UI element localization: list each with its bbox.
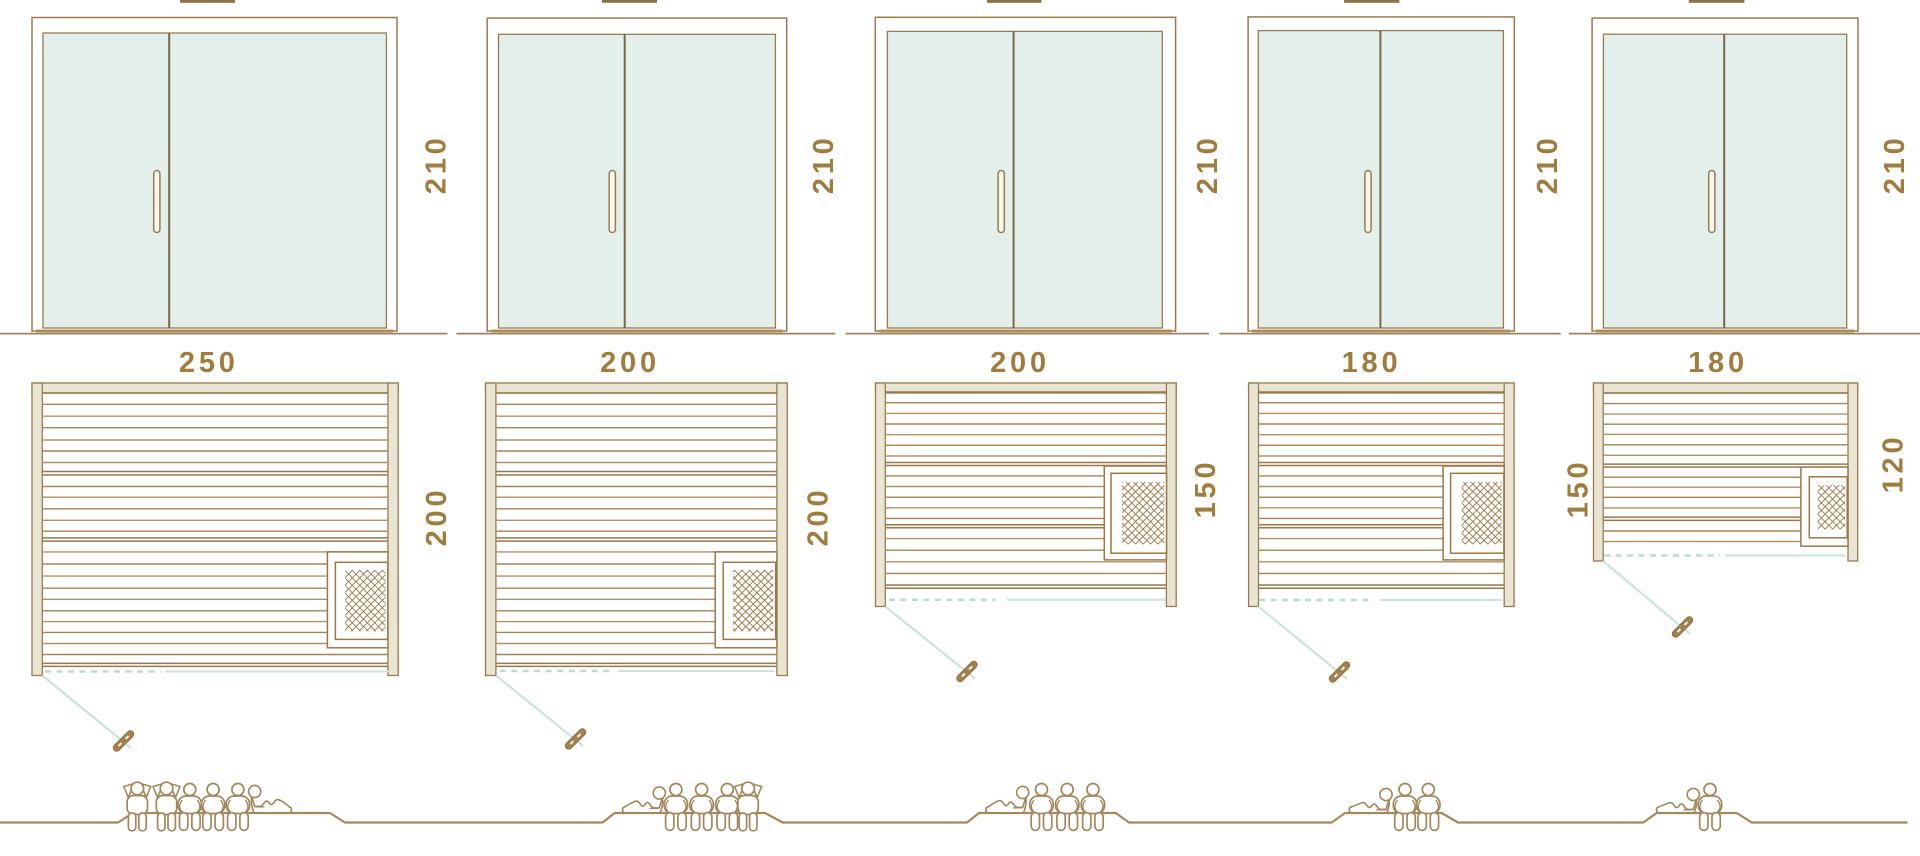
svg-text:210: 210: [1532, 134, 1564, 194]
svg-text:210: 210: [808, 134, 840, 194]
svg-text:180: 180: [1342, 347, 1402, 379]
svg-text:150: 150: [1563, 459, 1595, 519]
svg-text:210: 210: [1192, 134, 1224, 194]
svg-text:200: 200: [803, 487, 835, 547]
svg-text:200: 200: [421, 487, 453, 547]
svg-text:150: 150: [1190, 459, 1222, 519]
svg-text:120: 120: [1878, 434, 1910, 494]
svg-text:180: 180: [1688, 347, 1748, 379]
svg-text:250: 250: [179, 347, 239, 379]
svg-text:210: 210: [1879, 134, 1911, 194]
svg-text:210: 210: [421, 134, 453, 194]
svg-text:200: 200: [990, 347, 1050, 379]
svg-text:200: 200: [600, 347, 660, 379]
